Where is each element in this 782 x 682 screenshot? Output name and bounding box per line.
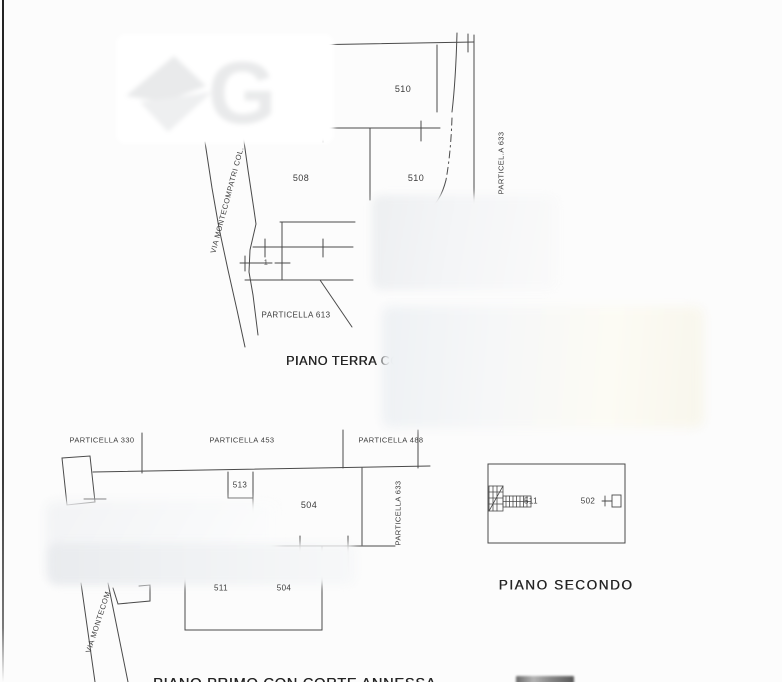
room-label-1: 1 xyxy=(264,260,268,267)
boundary-label-613: PARTICELLA 613 xyxy=(262,311,331,320)
blur-patch-center xyxy=(382,306,704,428)
room-label-502: 502 xyxy=(581,497,596,506)
boundary-label-488: PARTICELLA 488 xyxy=(359,436,424,445)
watermark-letter: G xyxy=(208,42,276,144)
scanned-floor-plan-sheet: PIANO TERRA CO G 510 508 510 1 PARTICEL.… xyxy=(0,0,782,682)
room-label-508: 508 xyxy=(293,173,309,183)
annex-diagonal xyxy=(320,280,352,327)
piano-primo-title: PIANO PRIMO CON CORTE ANNESSA xyxy=(153,676,436,682)
room-label-504-lower: 504 xyxy=(277,584,292,593)
blur-patch-bottom-strip xyxy=(48,543,356,585)
door-symbol xyxy=(602,495,621,507)
terra-curve-upper xyxy=(452,33,457,112)
primo-top-boundary xyxy=(93,466,430,472)
road-bottom-right-line xyxy=(108,583,128,682)
boundary-label-453: PARTICELLA 453 xyxy=(210,436,275,445)
secondo-outline xyxy=(488,464,625,543)
room-label-511-secondo: 511 xyxy=(524,497,538,506)
blur-patch-middle-right xyxy=(372,195,558,290)
boundary-label-633-top: PARTICEL.A 633 xyxy=(497,132,506,195)
room-label-510-lower: 510 xyxy=(408,173,424,183)
room-label-511-primo: 511 xyxy=(214,584,228,593)
room-label-504-upper: 504 xyxy=(301,500,317,510)
primo-road-notch xyxy=(113,585,150,604)
terra-curve-dashed xyxy=(446,118,452,180)
room-label-510-top: 510 xyxy=(395,84,411,94)
room-label-513: 513 xyxy=(233,481,248,490)
watermark-blur-patch: G xyxy=(116,34,334,144)
boundary-label-330: PARTICELLA 330 xyxy=(70,436,135,445)
boundary-label-633-bottom: PARTICELLA 633 xyxy=(394,481,403,546)
piano-secondo-title: PIANO SECONDO xyxy=(499,578,634,593)
primo-tilted-structure xyxy=(62,456,95,505)
clipped-stamp-fragment xyxy=(516,676,574,682)
